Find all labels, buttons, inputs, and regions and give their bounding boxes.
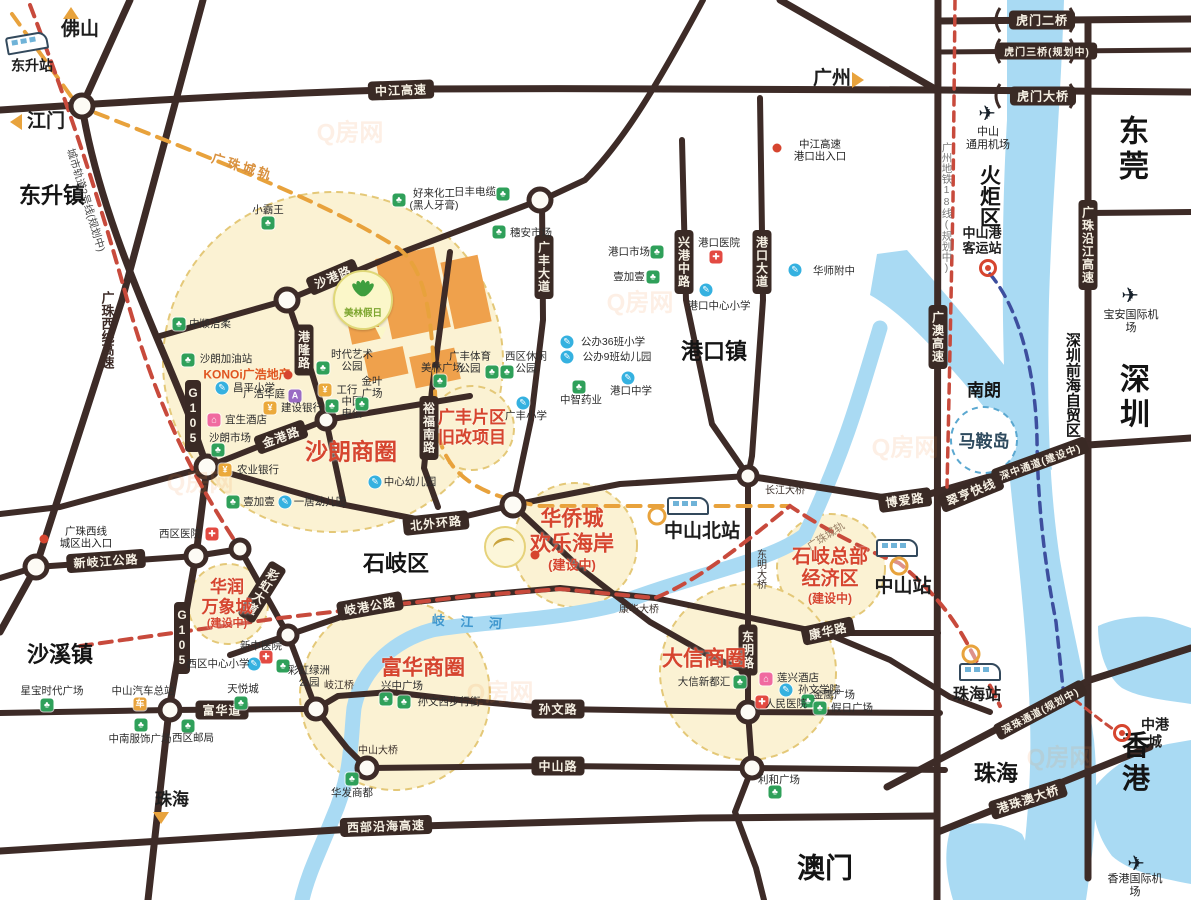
watermark: Q房网 [607,283,674,318]
poi-label: 时代艺术 公园 [331,349,373,374]
poi-icon: ♣ [317,362,330,375]
poi-icon: ♣ [380,693,393,706]
watermark: Q房网 [1027,738,1094,773]
poi-icon: ♣ [227,496,240,509]
station-ring-icon [962,645,981,664]
meilin-logo-text: 美林假日 [344,305,382,319]
poi-icon: ♣ [734,676,747,689]
road-pill: 兴港中路 [675,230,694,294]
poi-icon: ⌂ [208,414,221,427]
poi-icon: ✎ [561,336,574,349]
road-text: 康华大桥 [619,601,659,616]
poi-icon: A [289,390,302,403]
poi-label: 宜生酒店 [225,414,267,426]
poi-icon: ✚ [710,251,723,264]
road-pill: 新岐江公路 [66,549,146,573]
poi-icon: ♣ [235,697,248,710]
poi-label: 港口医院 [698,237,740,249]
zone-label-line: 经济区 [792,569,868,591]
road-pill: G105 [185,380,201,452]
poi-icon: ♣ [135,719,148,732]
poi-icon: ✎ [561,351,574,364]
zone-label-line: 富华商圈 [381,657,465,682]
poi-label: 港口中学 [610,385,652,397]
poi-icon: ✎ [622,372,635,385]
road-pill: 裕福南路 [420,396,439,460]
poi-label: 孙文西步行街 [418,696,481,708]
road-pill: 北外环路 [402,510,470,536]
zone-label-line: 万象城 [202,598,253,618]
direction-arrow-icon [63,7,79,19]
road-pill: 西部沿海高速 [340,815,433,837]
poi-label: 新中医院 [240,640,282,652]
airport-icon: ✈ [1121,284,1139,309]
poi-label: 大信新都汇 [678,676,731,688]
train-icon [5,30,49,55]
poi-label: 兴中广场 [381,680,423,692]
poi-icon: ¥ [219,464,232,477]
poi-label: 西区医院 [159,528,201,540]
road-pill: 虎门三桥(规划中) [997,43,1097,60]
poi-label: 华发商都 [331,787,373,799]
poi-label: 利和广场 [758,774,800,786]
region-label: 马鞍岛 [959,432,1010,452]
airport-label: 香港国际机场 [1107,873,1163,899]
road-text: 岐 江 河 [431,610,508,633]
poi-label: 工行 [337,384,358,396]
station-label: 中山港 客运站 [962,226,1001,257]
station-label: 东升站 [11,58,53,75]
zone-label-line: 华侨城 [530,508,614,533]
direction-label: 广州 [813,68,851,90]
poi-label: 星宝时代广场 [21,685,84,697]
poi-label: 壹加壹 [243,496,275,508]
map-labels-layer: Q房网Q房网Q房网Q房网Q房网Q房网东莞深圳香港澳门珠海东升镇沙溪镇石岐区港口镇… [0,0,1191,900]
station-label: 中山站 [874,576,931,598]
region-label: 东莞 [1106,115,1163,186]
zone-label-line: 大信商圈 [662,648,746,673]
poi-label: 金鹰广场 [813,689,855,701]
region-label: 沙溪镇 [27,642,93,668]
airport-icon: ✈ [978,102,996,127]
poi-label: 广丰体育 公园 [449,351,491,376]
poi-icon: ✎ [789,264,802,277]
road-pill: 广珠沿江高速 [1079,200,1098,290]
zone-label: 沙朗商圈 [305,438,397,465]
direction-arrow-icon [10,114,22,130]
poi-label: 中智药业 [560,394,602,406]
poi-icon: ♣ [573,381,586,394]
poi-label: 广丰小学 [505,410,547,422]
target-icon [1113,724,1131,742]
poi-icon: ✎ [279,496,292,509]
direction-label: 珠海 [155,790,189,810]
road-pill: 港口大道 [753,230,772,294]
poi-icon: ✎ [700,284,713,297]
road-text: 广州地铁18线(规划中) [940,142,955,274]
zone-label: 石岐总部经济区(建设中) [792,547,868,606]
poi-icon: ✎ [780,684,793,697]
poi-icon: ♣ [769,786,782,799]
poi-icon: ♣ [647,271,660,284]
zone-label: 广丰片区旧改项目 [438,408,506,448]
poi-label: 壹加壹 [613,271,645,283]
road-pill: 博爱路 [877,487,932,513]
road-pill: 中山路 [531,757,584,776]
poi-icon: ✎ [216,382,229,395]
poi-icon: ¥ [319,384,332,397]
poi-label: 西区邮局 [172,732,214,744]
meilin-logo-tail [375,327,387,339]
oct-swirl-logo [484,526,526,568]
poi-label: 农业银行 [237,464,279,476]
poi-icon: ♣ [173,318,186,331]
poi-icon: ♣ [814,702,827,715]
poi-label: 穗安市场 [510,227,552,239]
road-pill: 岐港公路 [336,591,404,621]
poi-icon: ♣ [182,720,195,733]
region-label: 火炬区 [976,165,1001,228]
poi-icon: ♣ [326,400,339,413]
road-pill: 深珠通道(规划中) [992,679,1088,741]
poi-icon: ♣ [434,375,447,388]
train-icon [876,539,918,557]
poi-label: 莲兴酒店 [777,672,819,684]
direction-arrow-icon [153,812,169,824]
region-label: 深圳 [1107,363,1163,434]
road-pill: 孙文路 [531,700,584,719]
zone-label-line: 欢乐海岸 [530,532,614,557]
road-pill: 虎门二桥 [1009,11,1075,30]
zone-label-line: (建设中) [202,618,253,631]
zone-label-line: 旧改项目 [438,428,506,448]
road-pill: 虎门大桥 [1010,87,1076,106]
road-text: 长江大桥 [765,482,805,497]
poi-label: 小霸王 [252,204,284,216]
station-target-icon [979,259,997,277]
exit-dot-icon [284,371,293,380]
poi-label: 日丰电缆 [454,186,496,198]
poi-label: 人民医院 [765,698,807,710]
exit-dot-icon [531,551,540,560]
zone-label: 华润万象城(建设中) [202,577,253,630]
train-icon [959,663,1001,681]
poi-label: 西区休闲 公园 [505,351,547,376]
poi-label: 公办36班小学 [581,336,645,348]
poi-label: 金叶 广场 [362,376,383,401]
watermark: Q房网 [872,428,939,463]
poi-label: 一居幼儿园 [294,496,347,508]
poi-label: 沙朗市场 [209,432,251,444]
poi-icon: ♣ [41,699,54,712]
station-label: 珠海站 [953,687,1001,706]
road-pill: 中江高速 [368,79,435,100]
marker-label: 广珠西线 城区出入口 [60,526,113,551]
road-text: 东明大桥 [753,549,768,589]
poi-label: 广浩华庭 [243,388,285,400]
airport-label: 宝安国际机场 [1101,309,1161,335]
station-label: 中山北站 [664,521,740,543]
zone-label: 大信商圈 [662,648,746,673]
road-pill: 康华路 [800,616,856,646]
road-text: 广珠西线高速 [98,291,117,369]
poi-icon: ♣ [493,226,506,239]
exit-dot-icon [40,535,49,544]
swirl-icon [491,535,516,555]
road-text: 中山大桥 [358,742,398,757]
region-label: 珠海 [974,761,1018,787]
train-icon [667,497,709,515]
poi-label: 天悦城 [227,683,259,695]
poi-label: 中顺洁柔 [189,318,231,330]
zone-label-line: 华润 [202,577,253,597]
poi-label: 建设银行 [281,402,323,414]
road-pill: 港隆路 [295,325,314,376]
region-label: 石岐区 [363,551,429,577]
poi-icon: ⌂ [760,673,773,686]
poi-icon: ♣ [182,354,195,367]
zone-label-line: 石岐总部 [792,547,868,569]
zone-label-line: 沙朗商圈 [305,438,397,465]
poi-icon: ♣ [651,246,664,259]
region-label: 南朗 [967,381,1001,401]
poi-label: 港口市场 [608,246,650,258]
poi-icon: ♣ [212,444,225,457]
direction-label: 佛山 [61,19,99,41]
poi-icon: ¥ [264,402,277,415]
poi-label: 华师附中 [813,265,855,277]
region-label: 深圳前海自贸区 [1063,333,1081,438]
road-pill: 广丰大道 [535,235,554,299]
poi-icon: ✎ [517,397,530,410]
zone-label-line: 广丰片区 [438,408,506,428]
poi-label: 假日广场 [831,702,873,714]
poi-icon: ✚ [260,651,273,664]
poi-label: 中心幼儿园 [384,476,437,488]
poi-icon: ✎ [369,476,382,489]
exit-dot-icon [773,144,782,153]
station-ring-icon [890,557,909,576]
poi-label: 西区中心小学 [187,658,250,670]
zone-label-line: (建设中) [792,591,868,605]
poi-label: 港口中心小学 [688,300,751,312]
poi-label: 中山汽车总站 [112,685,175,697]
marker-label: 中江高速 港口出入口 [794,139,847,164]
marker-label: 中港城 [1137,716,1173,749]
poi-icon: ♣ [398,696,411,709]
direction-arrow-icon [852,72,864,88]
poi-label: 公办9班幼儿园 [583,351,652,363]
road-text: KONOi广浩地产 [203,366,290,383]
poi-icon: ✚ [206,528,219,541]
poi-label: 中南服饰广场 [109,733,172,745]
zone-label-line: (建设中) [530,557,614,572]
poi-icon: ♣ [346,773,359,786]
zone-label: 富华商圈 [381,657,465,682]
direction-label: 江门 [27,111,65,133]
poi-label: 好来化工 (黑人牙膏) [410,188,459,213]
poi-label: 彩虹绿洲 公园 [288,665,330,690]
road-pill: 广澳高速 [929,305,948,369]
region-label: 港口镇 [681,339,747,365]
meilin-holiday-logo: 美林假日 [333,270,393,330]
poi-label: 沙朗加油站 [200,353,253,365]
map-canvas: Q房网Q房网Q房网Q房网Q房网Q房网东莞深圳香港澳门珠海东升镇沙溪镇石岐区港口镇… [0,0,1191,900]
airport-label: 中山 通用机场 [966,126,1010,152]
poi-icon: 车 [134,698,147,711]
region-label: 澳门 [797,851,853,884]
road-text: 广珠城轨 [210,148,277,185]
watermark: Q房网 [317,113,384,148]
poi-icon: ♣ [262,217,275,230]
poi-icon: ♣ [393,194,406,207]
zone-label: 华侨城欢乐海岸(建设中) [530,508,614,573]
poi-icon: ♣ [497,188,510,201]
